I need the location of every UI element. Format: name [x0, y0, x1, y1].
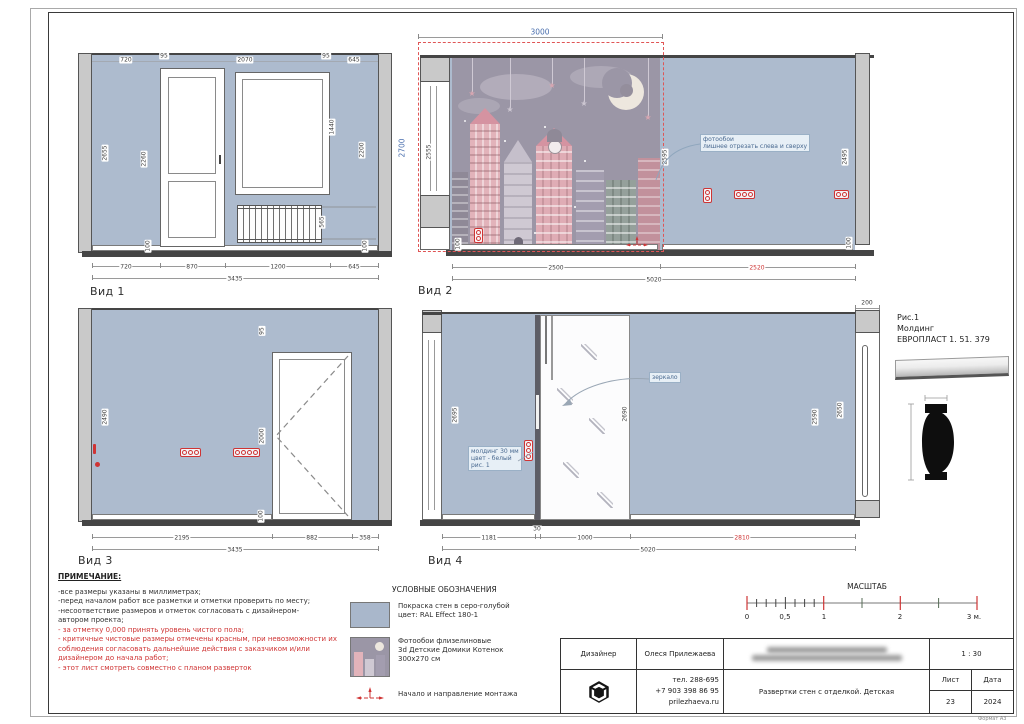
view-3-label: Вид 3 [78, 554, 113, 567]
legend-text: Фотообои флизелиновые [398, 637, 580, 646]
designer-label: Дизайнер [581, 650, 617, 658]
legend-text: Покраска стен в серо-голубой [398, 602, 580, 611]
side-wall-section [422, 310, 442, 520]
scale-bar-labels: 0 0,5 1 2 3 м. [742, 613, 992, 623]
date-value: 2024 [984, 698, 1002, 706]
doc-title: Развертки стен с отделкой. Детская [759, 688, 894, 696]
mirror-callout: зеркало [649, 372, 681, 383]
callout-line: рис. 1 [471, 462, 519, 469]
notes-title: ПРИМЕЧАНИЕ: [58, 572, 363, 582]
critical-dim-label: 2810 [733, 535, 750, 542]
dim-label: 2500 [547, 265, 564, 272]
outlet-symbol [834, 190, 849, 199]
dim-label: 2195 [173, 535, 190, 542]
window-glass [242, 79, 323, 188]
scale-bar-graphic [742, 593, 987, 613]
note-line: -все размеры указаны в миллиметрах; [58, 588, 363, 598]
baseboard [662, 244, 853, 250]
molding-3d-render [895, 356, 1009, 380]
dim-label: 2260 [141, 150, 148, 167]
outlet-symbol [734, 190, 755, 199]
thumb-moon [375, 642, 384, 651]
scale-label: 0 [745, 613, 749, 621]
thumb-building [365, 659, 374, 676]
note-line-critical: - критичные чистовые размеры отмечены кр… [58, 635, 363, 645]
door-handle [219, 155, 221, 164]
view-4-elevation: зеркало молдинг 30 мм цвет - белый рис. … [420, 300, 882, 562]
note-line-critical: дизайнером до начала работ; [58, 654, 363, 664]
section-line [428, 340, 429, 510]
doc-title-cell: Развертки стен с отделкой. Детская [723, 669, 929, 713]
legend-title: УСЛОВНЫЕ ОБОЗНАЧЕНИЯ [392, 585, 580, 594]
note-line-critical: - за отметку 0,000 принять уровень чисто… [58, 626, 363, 636]
baseboard [630, 514, 855, 520]
note-line-critical: соблюдения согласовать дальнейшие действ… [58, 645, 363, 655]
view-1-elevation: 720 95 2070 95 645 2655 2260 1440 2200 5… [78, 45, 418, 307]
dim-line [92, 537, 378, 538]
callout-line: зеркало [652, 374, 678, 381]
dim-label: 5020 [639, 547, 656, 554]
dim-label: 100 [258, 509, 265, 522]
dim-label: 200 [860, 300, 873, 307]
window [235, 72, 330, 195]
dim-label: 2490 [102, 408, 109, 425]
note-line-critical: - этот лист смотреть совместно с планом … [58, 664, 363, 674]
dim-line [452, 267, 855, 268]
door-swing-dashes [274, 354, 350, 518]
scale-cell: 1 : 30 [929, 639, 1013, 669]
wallpaper-extent-dashed [418, 42, 664, 252]
note-line: -перед началом работ все разметки и отме… [58, 597, 363, 607]
dim-tick [630, 534, 631, 539]
wallpaper-thumbnail [350, 637, 390, 677]
outlet-symbol [180, 448, 201, 457]
dim-label: 720 [119, 264, 132, 271]
dim-tick [225, 263, 226, 268]
legend-text: 300х270 см [398, 655, 580, 664]
date-value-cell: 2024 [971, 690, 1013, 713]
wallpaper-callout: фотообои лишнее отрезать слева и сверху [700, 134, 810, 152]
return-cap-bottom [855, 500, 880, 518]
door-lower-panel [168, 181, 216, 238]
return-cap-top [855, 310, 880, 333]
dim-label: 2070 [236, 57, 253, 64]
section-line [434, 340, 435, 510]
blurred-text [767, 647, 887, 653]
dim-tick [92, 263, 93, 268]
dim-tick [855, 534, 856, 539]
dim-label: 882 [305, 535, 318, 542]
designer-label-cell: Дизайнер [561, 639, 636, 669]
mount-direction-icon [626, 236, 648, 250]
dim-tick [378, 275, 379, 280]
dim-label: 2200 [359, 141, 366, 158]
scale-label: 2 [898, 613, 902, 621]
mirror-hatch [557, 388, 573, 404]
dim-label: 645 [347, 57, 360, 64]
note-line: -несоответствие размеров и отметок согла… [58, 607, 363, 617]
overall-height-dim: 2700 [399, 137, 406, 158]
floor-line [82, 520, 392, 526]
wall-paint-area [442, 314, 855, 520]
legend-text: цвет: RAL Effect 180-1 [398, 611, 580, 620]
website[interactable]: prilezhaeva.ru [669, 697, 719, 708]
dim-label: 100 [455, 237, 462, 250]
dim-label: 2555 [426, 143, 433, 160]
dim-label: 565 [319, 215, 326, 228]
scale-label: 3 м. [967, 613, 981, 621]
dim-label: 95 [321, 53, 331, 60]
scale-bar: МАСШТАБ 0 0,5 1 2 3 м. [742, 582, 992, 623]
dim-tick [442, 546, 443, 551]
dim-label: 2695 [452, 406, 459, 423]
dim-label: 2655 [102, 144, 109, 161]
dim-label: 1181 [480, 535, 497, 542]
view-4-label: Вид 4 [428, 554, 463, 567]
callout-line: цвет - белый [471, 455, 519, 462]
wall-lamp-symbol [93, 444, 96, 454]
legend-text: 3d Детские Домики Котенок [398, 646, 580, 655]
sheet-label-cell: Лист [929, 669, 971, 690]
outlet-symbol [703, 188, 712, 203]
thumb-building [376, 655, 385, 676]
dim-tick [452, 264, 453, 269]
scale-label: 0,5 [779, 613, 790, 621]
dim-label: 870 [185, 264, 198, 271]
dim-tick [662, 34, 663, 39]
view-2-label: Вид 2 [418, 284, 453, 297]
callout-line: лишнее отрезать слева и сверху [703, 143, 807, 150]
mirror-hanger [545, 316, 547, 364]
dim-label: 5020 [645, 277, 662, 284]
dim-tick [92, 534, 93, 539]
dim-tick [452, 276, 453, 281]
molding-side-view [862, 345, 868, 497]
molding-highlight [536, 395, 539, 429]
callout-line: молдинг 30 мм [471, 448, 519, 455]
dim-label: 30 [532, 526, 542, 533]
date-label: Дата [983, 676, 1001, 684]
view-3-elevation: 95 2490 2000 100 2195 882 358 3435 Вид 3 [78, 300, 418, 562]
legend-text: Начало и направление монтажа [398, 686, 580, 699]
dim-tick [660, 264, 661, 269]
mirror [540, 315, 630, 520]
sheet-number-cell: 23 [929, 690, 971, 713]
dim-label: 720 [119, 57, 132, 64]
mirror-hatch [597, 492, 613, 508]
dim-label: 2595 [662, 148, 669, 165]
molding-callout: молдинг 30 мм цвет - белый рис. 1 [468, 446, 522, 471]
phone-1: тел. 288-695 [672, 675, 719, 686]
dim-tick [418, 34, 419, 39]
dim-tick [378, 263, 379, 268]
baseboard [92, 245, 378, 251]
dim-label: 1440 [329, 118, 336, 135]
contacts-cell: тел. 288-695 +7 903 398 86 95 prilezhaev… [636, 669, 723, 713]
sheet-label: Лист [942, 676, 960, 684]
dim-label: 645 [347, 264, 360, 271]
dim-tick [330, 263, 331, 268]
dim-label: 95 [159, 53, 169, 60]
logo-cell [561, 669, 636, 713]
dim-line [442, 537, 855, 538]
dim-tick [378, 546, 379, 551]
mirror-hatch [589, 418, 605, 434]
scale-bar-title: МАСШТАБ [742, 582, 992, 591]
dim-label: 2650 [837, 401, 844, 418]
dim-label: 3435 [226, 547, 243, 554]
caption-line: Рис.1 [897, 312, 990, 323]
dim-line [92, 266, 378, 267]
note-line: автором проекта; [58, 616, 363, 626]
date-label-cell: Дата [971, 669, 1013, 690]
legend-item-paint: Покраска стен в серо-голубой цвет: RAL E… [350, 602, 580, 628]
cable-outlet-symbol [95, 462, 100, 467]
mirror-hanger [551, 316, 553, 380]
floor-line [82, 251, 392, 257]
dim-tick [855, 546, 856, 551]
critical-dim-label: 2520 [748, 265, 765, 272]
outlet-symbol [524, 440, 533, 461]
dim-label: 358 [358, 535, 371, 542]
dim-tick [540, 534, 541, 539]
dim-label: 2690 [622, 405, 629, 422]
paint-swatch [350, 602, 390, 628]
dim-tick [855, 264, 856, 269]
drawing-scale: 1 : 30 [961, 650, 981, 658]
dim-tick [535, 534, 536, 539]
view-1-label: Вид 1 [90, 285, 125, 298]
door-glass-panel [168, 77, 216, 174]
dim-line [92, 61, 378, 62]
dim-tick [879, 305, 880, 310]
callout-line: фотообои [703, 136, 807, 143]
dim-tick [378, 534, 379, 539]
scale-label: 1 [822, 613, 826, 621]
notes-block: ПРИМЕЧАНИЕ: -все размеры указаны в милли… [58, 572, 363, 673]
dim-label: 3435 [226, 276, 243, 283]
dim-tick [272, 534, 273, 539]
project-info-blurred [723, 639, 929, 669]
mirror-hatch [563, 462, 579, 478]
outlet-symbol [233, 448, 260, 457]
view-2-elevation: ★ ★ ★ ★ ★ [418, 30, 880, 298]
wall-section-right [378, 308, 392, 522]
phone-2: +7 903 398 86 95 [655, 686, 719, 697]
dim-label: 100 [145, 239, 152, 252]
dim-tick [855, 305, 856, 310]
mirror-hatch [581, 344, 597, 360]
dim-tick [92, 275, 93, 280]
dim-label: 2590 [812, 408, 819, 425]
dim-label: 95 [259, 326, 266, 336]
thumb-building [354, 652, 363, 676]
designer-name: Олеся Прилежаева [645, 650, 716, 658]
designer-logo-icon [586, 679, 612, 705]
dim-tick [855, 276, 856, 281]
dim-line [855, 308, 880, 309]
radiator [237, 205, 322, 243]
molding-profile-section [905, 392, 965, 492]
mount-direction-icon [356, 687, 384, 704]
dim-tick [352, 534, 353, 539]
designer-name-cell: Олеся Прилежаева [636, 639, 723, 669]
sheet-number: 23 [946, 698, 955, 706]
dim-tick [92, 546, 93, 551]
wall-section-right [378, 53, 392, 253]
dim-label: 100 [362, 239, 369, 252]
legend-item-wallpaper: Фотообои флизелиновые 3d Детские Домики … [350, 637, 580, 677]
floor-line [420, 520, 860, 526]
legend-block: УСЛОВНЫЕ ОБОЗНАЧЕНИЯ Покраска стен в сер… [350, 585, 580, 713]
title-block: Дизайнер Олеся Прилежаева 1 : 30 тел. 28… [560, 638, 1014, 714]
blurred-text [752, 655, 902, 661]
molding-figure-caption: Рис.1 Молдинг ЕВРОПЛАСТ 1. 51. 379 [897, 312, 990, 345]
legend-item-mount: Начало и направление монтажа [350, 686, 580, 704]
dim-label: 2495 [842, 148, 849, 165]
dim-label: 1200 [269, 264, 286, 271]
wall-section-left [78, 53, 92, 253]
dim-line [418, 37, 662, 38]
dim-tick [160, 263, 161, 268]
wallpaper-width-dim: 3000 [529, 29, 550, 36]
dim-label: 100 [846, 236, 853, 249]
caption-line: ЕВРОПЛАСТ 1. 51. 379 [897, 334, 990, 345]
dim-label: 2000 [259, 427, 266, 444]
dim-tick [442, 534, 443, 539]
format-label: Формат А3 [978, 716, 1006, 722]
caption-line: Молдинг [897, 323, 990, 334]
dim-label: 1000 [576, 535, 593, 542]
balcony-door [160, 68, 225, 247]
drawing-sheet: 720 95 2070 95 645 2655 2260 1440 2200 5… [0, 0, 1024, 724]
baseboard [92, 514, 272, 520]
baseboard [442, 514, 535, 520]
wall-section-left [78, 308, 92, 522]
wall-section-right [855, 53, 870, 245]
